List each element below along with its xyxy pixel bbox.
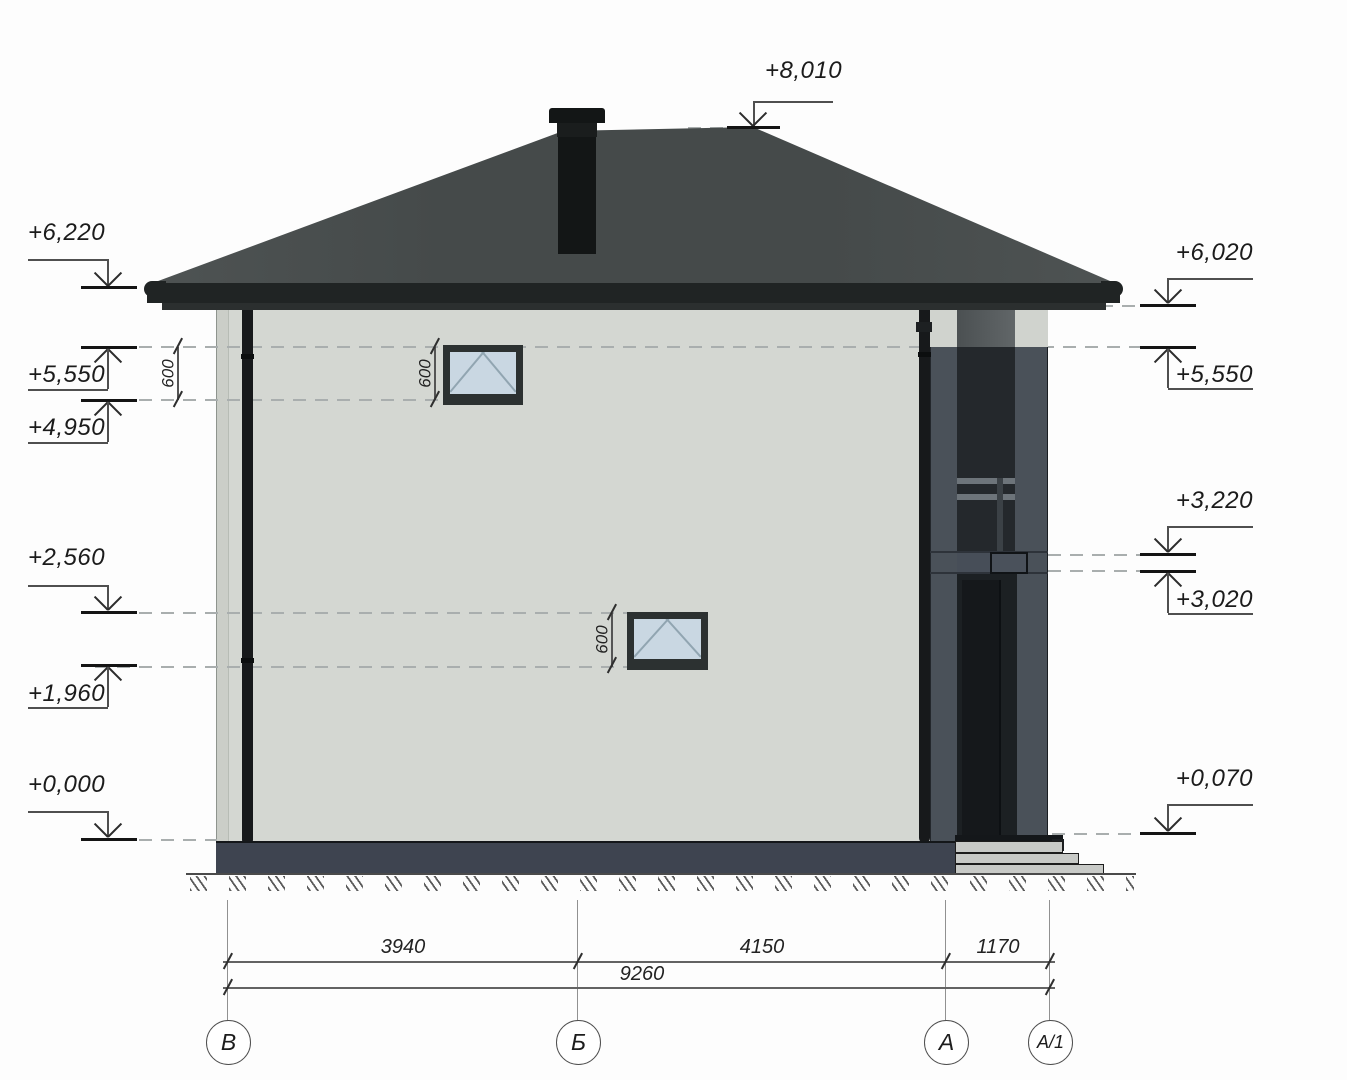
axis-bubble-b: Б: [556, 1020, 601, 1065]
level-dash-1960: [95, 666, 630, 668]
hip-roof: [148, 127, 1119, 285]
marker-base-line: [1140, 553, 1196, 556]
downpipe-right-joint: [918, 352, 931, 357]
axis-label: В: [221, 1029, 236, 1056]
ground-line: [186, 873, 1136, 875]
porch-pier-right-top: [1015, 310, 1048, 347]
level-dash-4950: [95, 399, 447, 401]
marker-flag: [1168, 804, 1253, 806]
marker-flag: [753, 101, 833, 103]
upper-window-glass: [450, 352, 516, 394]
axis-label: А: [939, 1029, 954, 1056]
marker-flag: [1168, 278, 1253, 280]
porch-recess-top: [957, 310, 1015, 347]
dimension-value: 1170: [938, 937, 1058, 957]
gutter-end-right: [1101, 281, 1123, 297]
opening-symbol-line: [634, 619, 671, 657]
marker-base-line: [1140, 304, 1196, 307]
elevation-marker-label: +2,560: [28, 545, 105, 570]
downpipe-right-joint: [916, 322, 932, 332]
axis-label: Б: [571, 1029, 586, 1056]
dim-600-label: 600: [594, 615, 611, 665]
level-dash-3220: [1048, 554, 1140, 556]
downpipe-left: [242, 296, 253, 845]
balcony-rail-post: [997, 478, 1003, 554]
marker-base-line: [81, 286, 137, 289]
marker-leader: [107, 667, 109, 707]
level-dash-0070: [1052, 833, 1140, 835]
axis-bubble-a1: А/1: [1028, 1020, 1073, 1065]
chimney-cap: [549, 108, 605, 123]
downpipe-left-joint: [241, 354, 254, 359]
axis-label: А/1: [1037, 1032, 1064, 1053]
level-dash-6020: [1100, 305, 1140, 307]
elevation-marker-label: +5,550: [1168, 362, 1253, 387]
elevation-marker-label: +0,070: [1168, 766, 1253, 791]
marker-flag: [28, 442, 108, 444]
marker-flag: [28, 389, 108, 391]
marker-flag: [28, 585, 108, 587]
marker-flag: [1168, 526, 1253, 528]
elevation-marker-label: +6,020: [1168, 240, 1253, 265]
dim-600-label: 600: [160, 349, 177, 399]
porch-pier-left: [930, 347, 957, 841]
balcony-slab-end: [990, 552, 1028, 574]
downpipe-left-joint: [241, 658, 254, 663]
dim-600-label: 600: [417, 349, 434, 399]
marker-leader: [107, 402, 109, 442]
gutter-end-left: [144, 281, 166, 297]
marker-base-line: [81, 838, 137, 841]
facade-left-corner: [216, 310, 229, 841]
entry-step-1: [955, 841, 1063, 853]
lower-window: [627, 612, 708, 670]
upper-window: [443, 345, 523, 405]
elevation-marker-label: +4,950: [28, 415, 105, 440]
eaves-fascia: [147, 283, 1120, 303]
entry-step-2: [955, 853, 1079, 864]
lower-window-glass: [634, 619, 701, 659]
marker-flag: [28, 811, 108, 813]
grade-hatch: [190, 876, 1134, 891]
axis-bubble-a: А: [924, 1020, 969, 1065]
opening-symbol-line: [664, 619, 701, 657]
porch-pier-left-top: [930, 310, 957, 347]
downpipe-right: [919, 300, 930, 843]
chimney-body: [558, 137, 596, 254]
dimension-total-value: 9260: [582, 964, 702, 984]
level-dash-3020: [1048, 570, 1140, 572]
elevation-drawing-canvas: +8,010 +6,220 +5,550 +4,950 +2,560 +1,96…: [0, 0, 1347, 1080]
marker-flag: [1168, 613, 1253, 615]
axis-bubble-v: В: [206, 1020, 251, 1065]
elevation-marker-label: +3,020: [1168, 587, 1253, 612]
chimney-neck: [557, 123, 597, 137]
elevation-marker-label: +5,550: [28, 362, 105, 387]
marker-flag: [1168, 388, 1253, 390]
opening-symbol-line: [450, 352, 485, 392]
balcony-recess: [957, 347, 1015, 553]
marker-flag: [28, 707, 108, 709]
plinth: [216, 841, 957, 874]
elevation-marker-label: +8,010: [765, 58, 842, 83]
balcony-rail-bottom: [957, 494, 1015, 500]
marker-leader: [107, 349, 109, 389]
marker-flag: [28, 259, 108, 261]
entry-door: [962, 580, 999, 838]
level-dash-2560: [95, 612, 630, 614]
balcony-slab-top-edge: [930, 551, 1048, 553]
elevation-marker-label: +3,220: [1168, 488, 1253, 513]
elevation-marker-label: +1,960: [28, 681, 105, 706]
entry-door-frame-line: [999, 580, 1001, 838]
elevation-marker-label: +0,000: [28, 772, 105, 797]
facade-wall: [216, 310, 931, 841]
marker-base-line: [81, 611, 137, 614]
dimension-value: 3940: [343, 937, 463, 957]
marker-base-line: [727, 126, 780, 129]
elevation-marker-label: +6,220: [28, 220, 105, 245]
marker-base-line: [1140, 832, 1196, 835]
opening-symbol-line: [481, 352, 516, 392]
eaves-soffit: [162, 303, 1106, 310]
balcony-rail-top: [957, 478, 1015, 484]
dimension-value: 4150: [702, 937, 822, 957]
porch-pier-right: [1015, 347, 1048, 841]
dimension-line-total: [223, 987, 1055, 989]
